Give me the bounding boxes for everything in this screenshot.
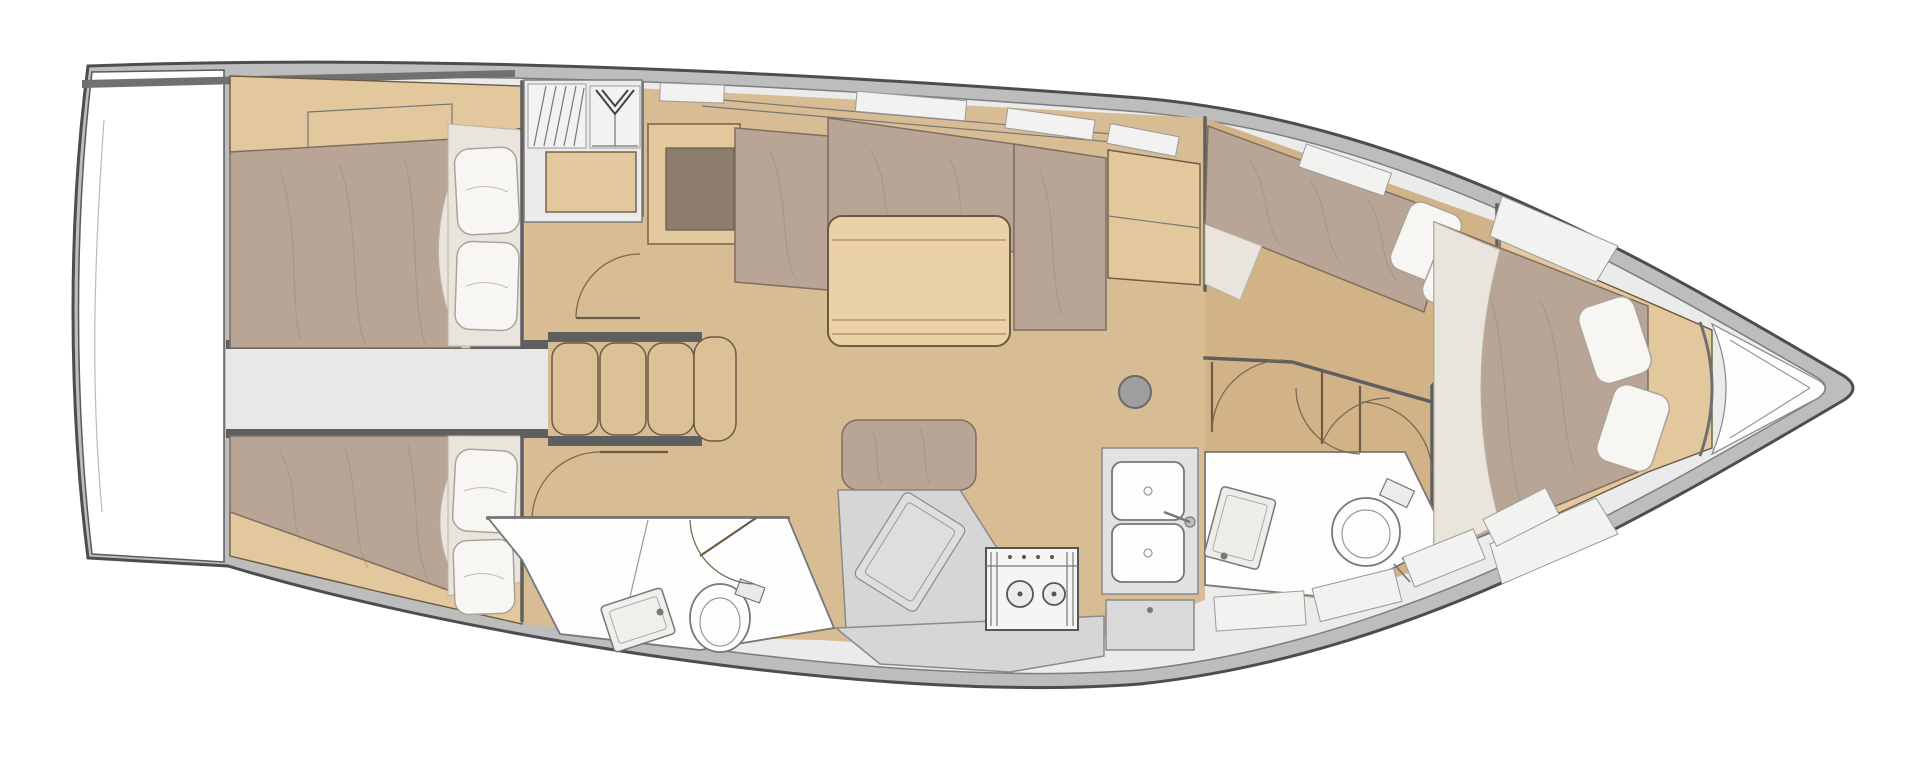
knob — [1147, 607, 1153, 613]
engine-box — [226, 346, 548, 436]
pillow — [454, 146, 520, 235]
stair-tread — [552, 343, 598, 435]
stove-two-burner — [986, 548, 1078, 630]
sideboard-cabinet — [648, 124, 740, 244]
boat-floorplan-page — [0, 0, 1920, 784]
wet-locker-cabinet — [546, 152, 636, 212]
pillow — [454, 241, 519, 331]
boat-floorplan — [0, 0, 1920, 784]
companionway-stairs-icon — [548, 332, 736, 446]
aft-cabin-port — [230, 76, 522, 348]
settee-cushion — [1014, 144, 1106, 330]
side-locker — [1214, 591, 1306, 631]
sink-basin-icon — [1112, 462, 1184, 520]
mast-icon — [1119, 376, 1151, 408]
coachroof-window — [660, 83, 725, 103]
settee-cushion — [735, 128, 828, 290]
faucet — [657, 609, 664, 616]
double-bed — [230, 138, 470, 348]
saloon-table — [828, 216, 1010, 346]
stair-frame-top — [548, 332, 702, 342]
stair-frame-bottom — [548, 436, 702, 446]
stair-tread — [600, 343, 646, 435]
hanging-locker — [590, 86, 640, 148]
bench-seat — [842, 420, 976, 490]
pillow — [453, 539, 516, 615]
louvered-locker — [528, 84, 586, 148]
galley-locker — [1106, 600, 1194, 650]
stair-tread-cap — [694, 337, 736, 441]
engine-compartment — [226, 340, 548, 438]
faucet — [1221, 553, 1228, 560]
double-sink — [1102, 448, 1198, 594]
stair-tread — [648, 343, 694, 435]
sink-basin-icon — [1112, 524, 1184, 582]
cabinet-inset — [666, 148, 734, 230]
